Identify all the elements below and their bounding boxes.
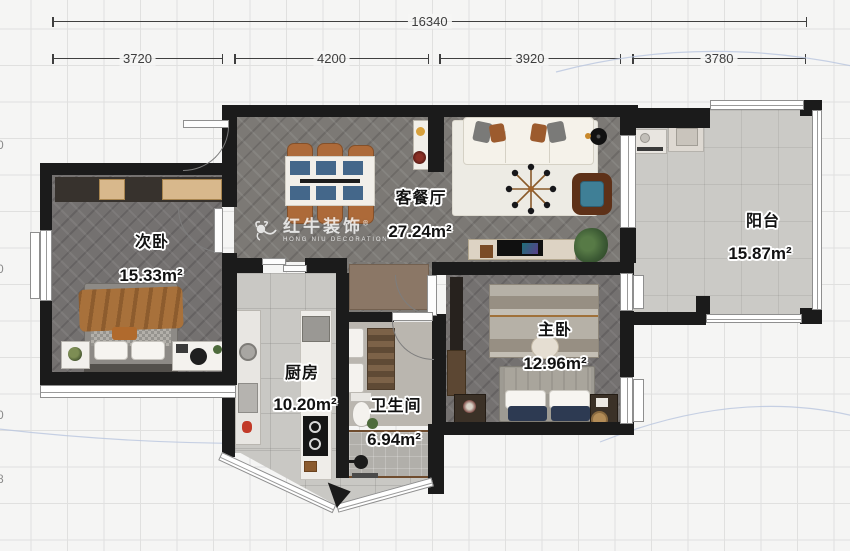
room-area-secondary-bedroom: 15.33m² (119, 266, 182, 286)
wall-corner-block (800, 308, 822, 324)
accent-pillow (508, 406, 547, 421)
window (40, 230, 52, 301)
wall-segment (40, 163, 236, 175)
room-label-bathroom: 卫生间 (370, 392, 421, 416)
bed-blanket (78, 286, 183, 332)
entry-door-leaf (183, 120, 229, 128)
registered-mark: ® (363, 220, 371, 227)
flower-decor (68, 347, 82, 361)
room-label-master-bedroom: 主卧 (538, 316, 572, 340)
bedroom-door-leaf (214, 208, 223, 253)
cooktop-burner (309, 421, 321, 433)
wall-segment (305, 258, 347, 273)
record-player (590, 128, 607, 145)
wall-segment (222, 105, 638, 117)
shower-bench (352, 473, 378, 478)
wardrobe (450, 277, 463, 352)
window-sill (30, 232, 40, 299)
floorplan-canvas: 16340 3720 4200 3920 3780 0 0 0 8 (0, 0, 850, 551)
shower-head-icon (354, 455, 368, 469)
bathroom-door-leaf (392, 312, 433, 321)
wall-segment (336, 312, 394, 322)
kitchen-sink (238, 383, 258, 413)
flower-decor (413, 151, 426, 164)
washer-dial (640, 133, 650, 143)
wall-segment (620, 117, 636, 135)
placemat (316, 186, 336, 200)
watermark: 红牛装饰® HONG NIU DECORATION (252, 218, 388, 243)
room-label-kitchen: 厨房 (285, 359, 319, 383)
placemat (290, 186, 310, 200)
watermark-brand: 红牛装饰 (283, 217, 363, 236)
placemat (343, 161, 363, 175)
cabinet-drawer (480, 245, 493, 258)
room-label-living-dining: 客餐厅 (395, 184, 446, 208)
flower-decor (463, 400, 476, 413)
wall-segment (432, 422, 634, 435)
wall-segment (40, 175, 52, 230)
wall-segment (696, 296, 710, 314)
washer-slot (637, 147, 663, 151)
accent-pillow (112, 327, 137, 340)
placemat (343, 186, 363, 200)
room-area-living-dining: 27.24m² (388, 222, 451, 242)
kitchen-sliding-door (283, 265, 307, 272)
wall-segment (432, 262, 634, 275)
plant (367, 418, 378, 429)
wardrobe-door-panel (99, 179, 125, 200)
partition-stub (428, 117, 444, 172)
balcony-sink (676, 128, 698, 146)
low-cabinet (447, 350, 466, 396)
wall-segment (336, 273, 349, 478)
wall-segment (620, 312, 706, 325)
desk-decor (176, 344, 188, 353)
pillow (94, 341, 128, 360)
plant (574, 228, 608, 263)
sofa-pillow (546, 121, 567, 144)
wall-segment (620, 228, 636, 263)
room-area-kitchen: 10.20m² (273, 395, 336, 415)
accent-pillow (551, 406, 590, 421)
nightstand-decor (596, 398, 608, 407)
window (710, 100, 804, 110)
room-area-master-bedroom: 12.96m² (523, 354, 586, 374)
placemat (290, 161, 310, 175)
window-sill (633, 379, 644, 422)
window (706, 314, 802, 323)
window (620, 377, 633, 424)
kettle (242, 421, 252, 433)
placemat (316, 161, 336, 175)
armchair-pillow (580, 181, 604, 207)
wall-segment (630, 108, 710, 128)
cooktop-burner (309, 438, 321, 450)
watermark-subtitle: HONG NIU DECORATION (283, 237, 388, 243)
wardrobe-door-panel (162, 179, 222, 200)
master-door-leaf (427, 275, 437, 316)
kitchen-sliding-door (262, 258, 286, 265)
room-area-bathroom: 6.94m² (367, 430, 421, 450)
record-knob (585, 133, 591, 139)
sofa-pillow (489, 123, 507, 143)
desk-chair (190, 348, 207, 365)
sofa-pillow (530, 123, 548, 143)
room-label-balcony: 阳台 (746, 207, 780, 231)
window (812, 110, 822, 310)
window (620, 273, 633, 311)
wood-box (304, 461, 317, 472)
tv-screen (522, 243, 538, 254)
balcony-sliding-door (620, 135, 636, 228)
wall-segment (233, 258, 263, 273)
console-decor (416, 127, 425, 136)
desk-plant (213, 345, 222, 354)
window-sill (40, 385, 236, 398)
table-runner (300, 179, 360, 183)
fridge (302, 316, 330, 342)
bull-logo-icon (252, 219, 278, 243)
wall-segment (432, 314, 446, 426)
room-label-secondary-bedroom: 次卧 (135, 228, 169, 252)
bath-mat (367, 328, 395, 390)
room-area-balcony: 15.87m² (728, 244, 791, 264)
window-sill (633, 275, 644, 309)
wall-segment (40, 372, 236, 385)
pillow (131, 341, 165, 360)
stove-burner (239, 343, 257, 361)
sputnik-chandelier (504, 162, 558, 216)
